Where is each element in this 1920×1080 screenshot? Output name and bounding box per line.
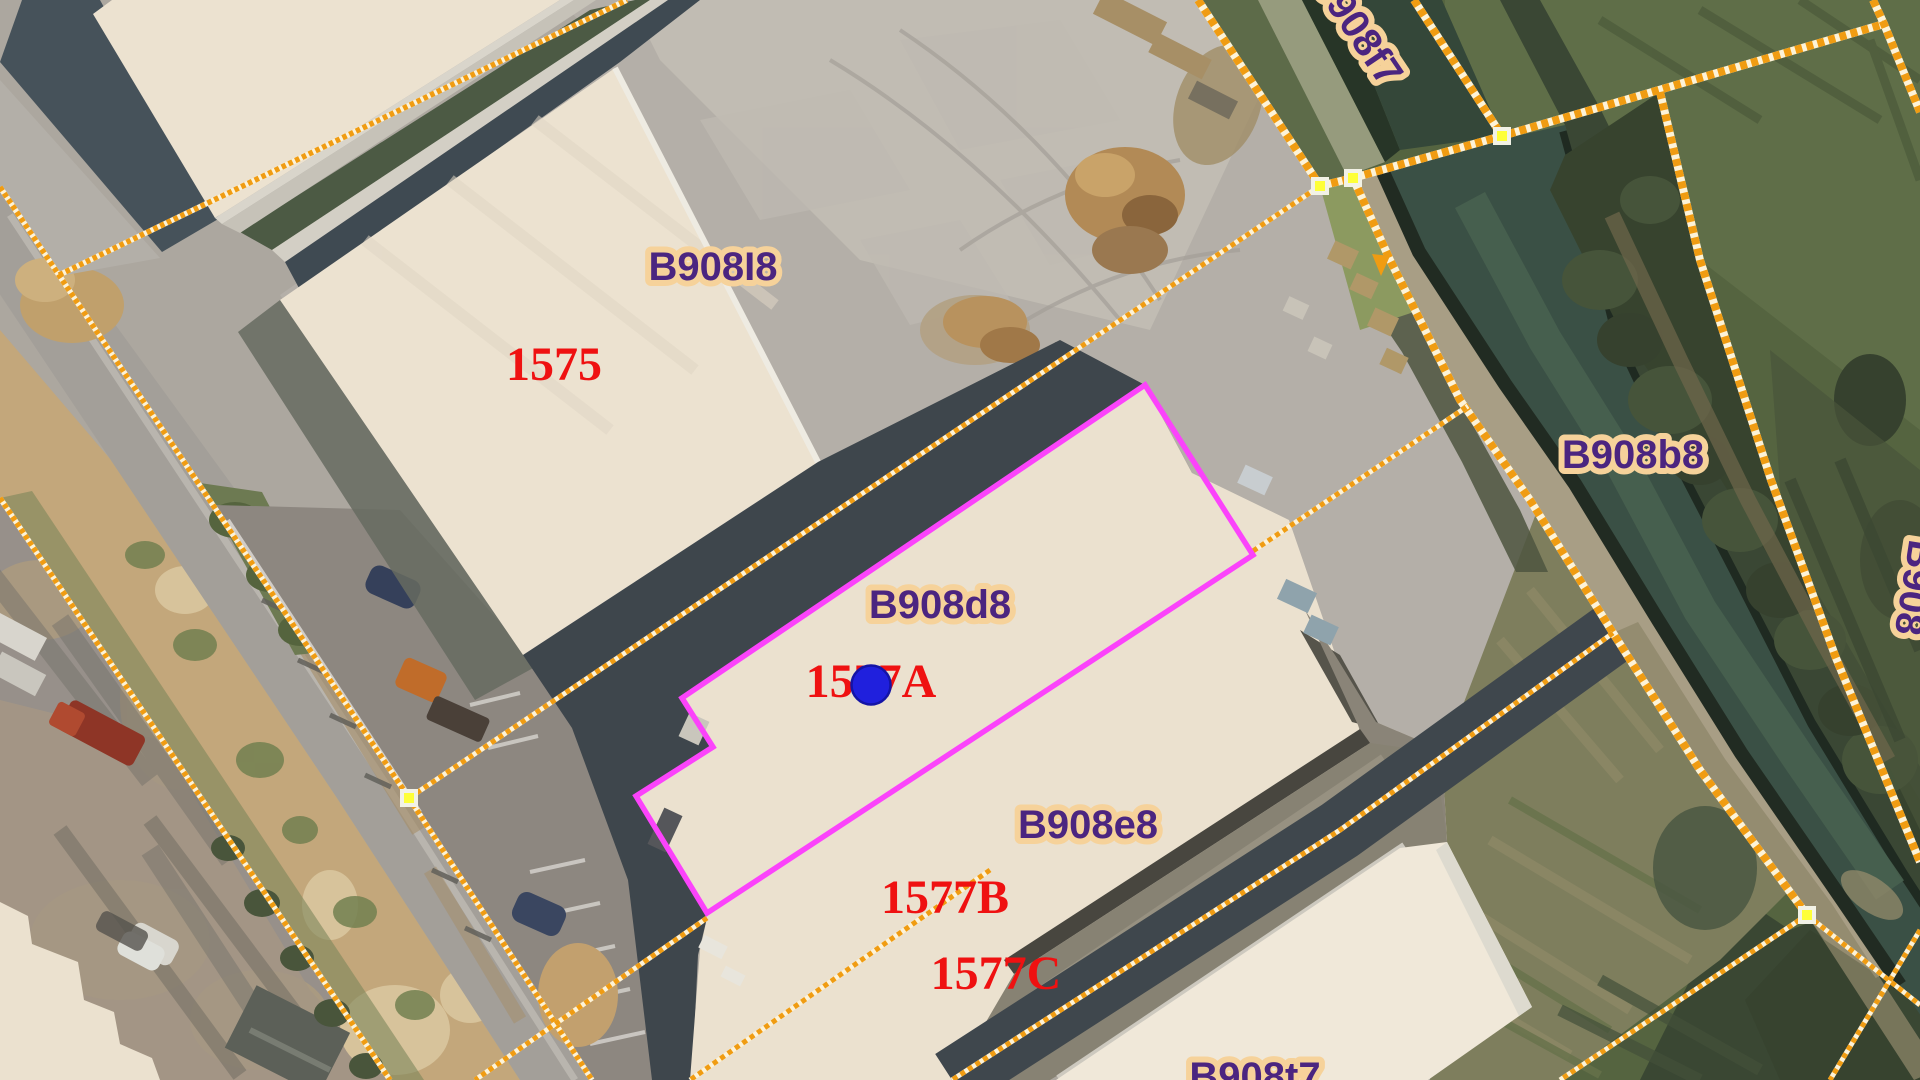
svg-text:B908b8: B908b8 — [1562, 433, 1704, 477]
svg-text:B908d8: B908d8 — [869, 583, 1011, 627]
svg-text:1577B: 1577B — [881, 871, 1009, 924]
svg-text:B908I8: B908I8 — [649, 245, 778, 289]
svg-text:B908t7: B908t7 — [1189, 1055, 1320, 1080]
svg-text:B908e8: B908e8 — [1018, 803, 1158, 847]
svg-text:1575: 1575 — [506, 338, 602, 391]
svg-text:1577C: 1577C — [931, 947, 1062, 1000]
